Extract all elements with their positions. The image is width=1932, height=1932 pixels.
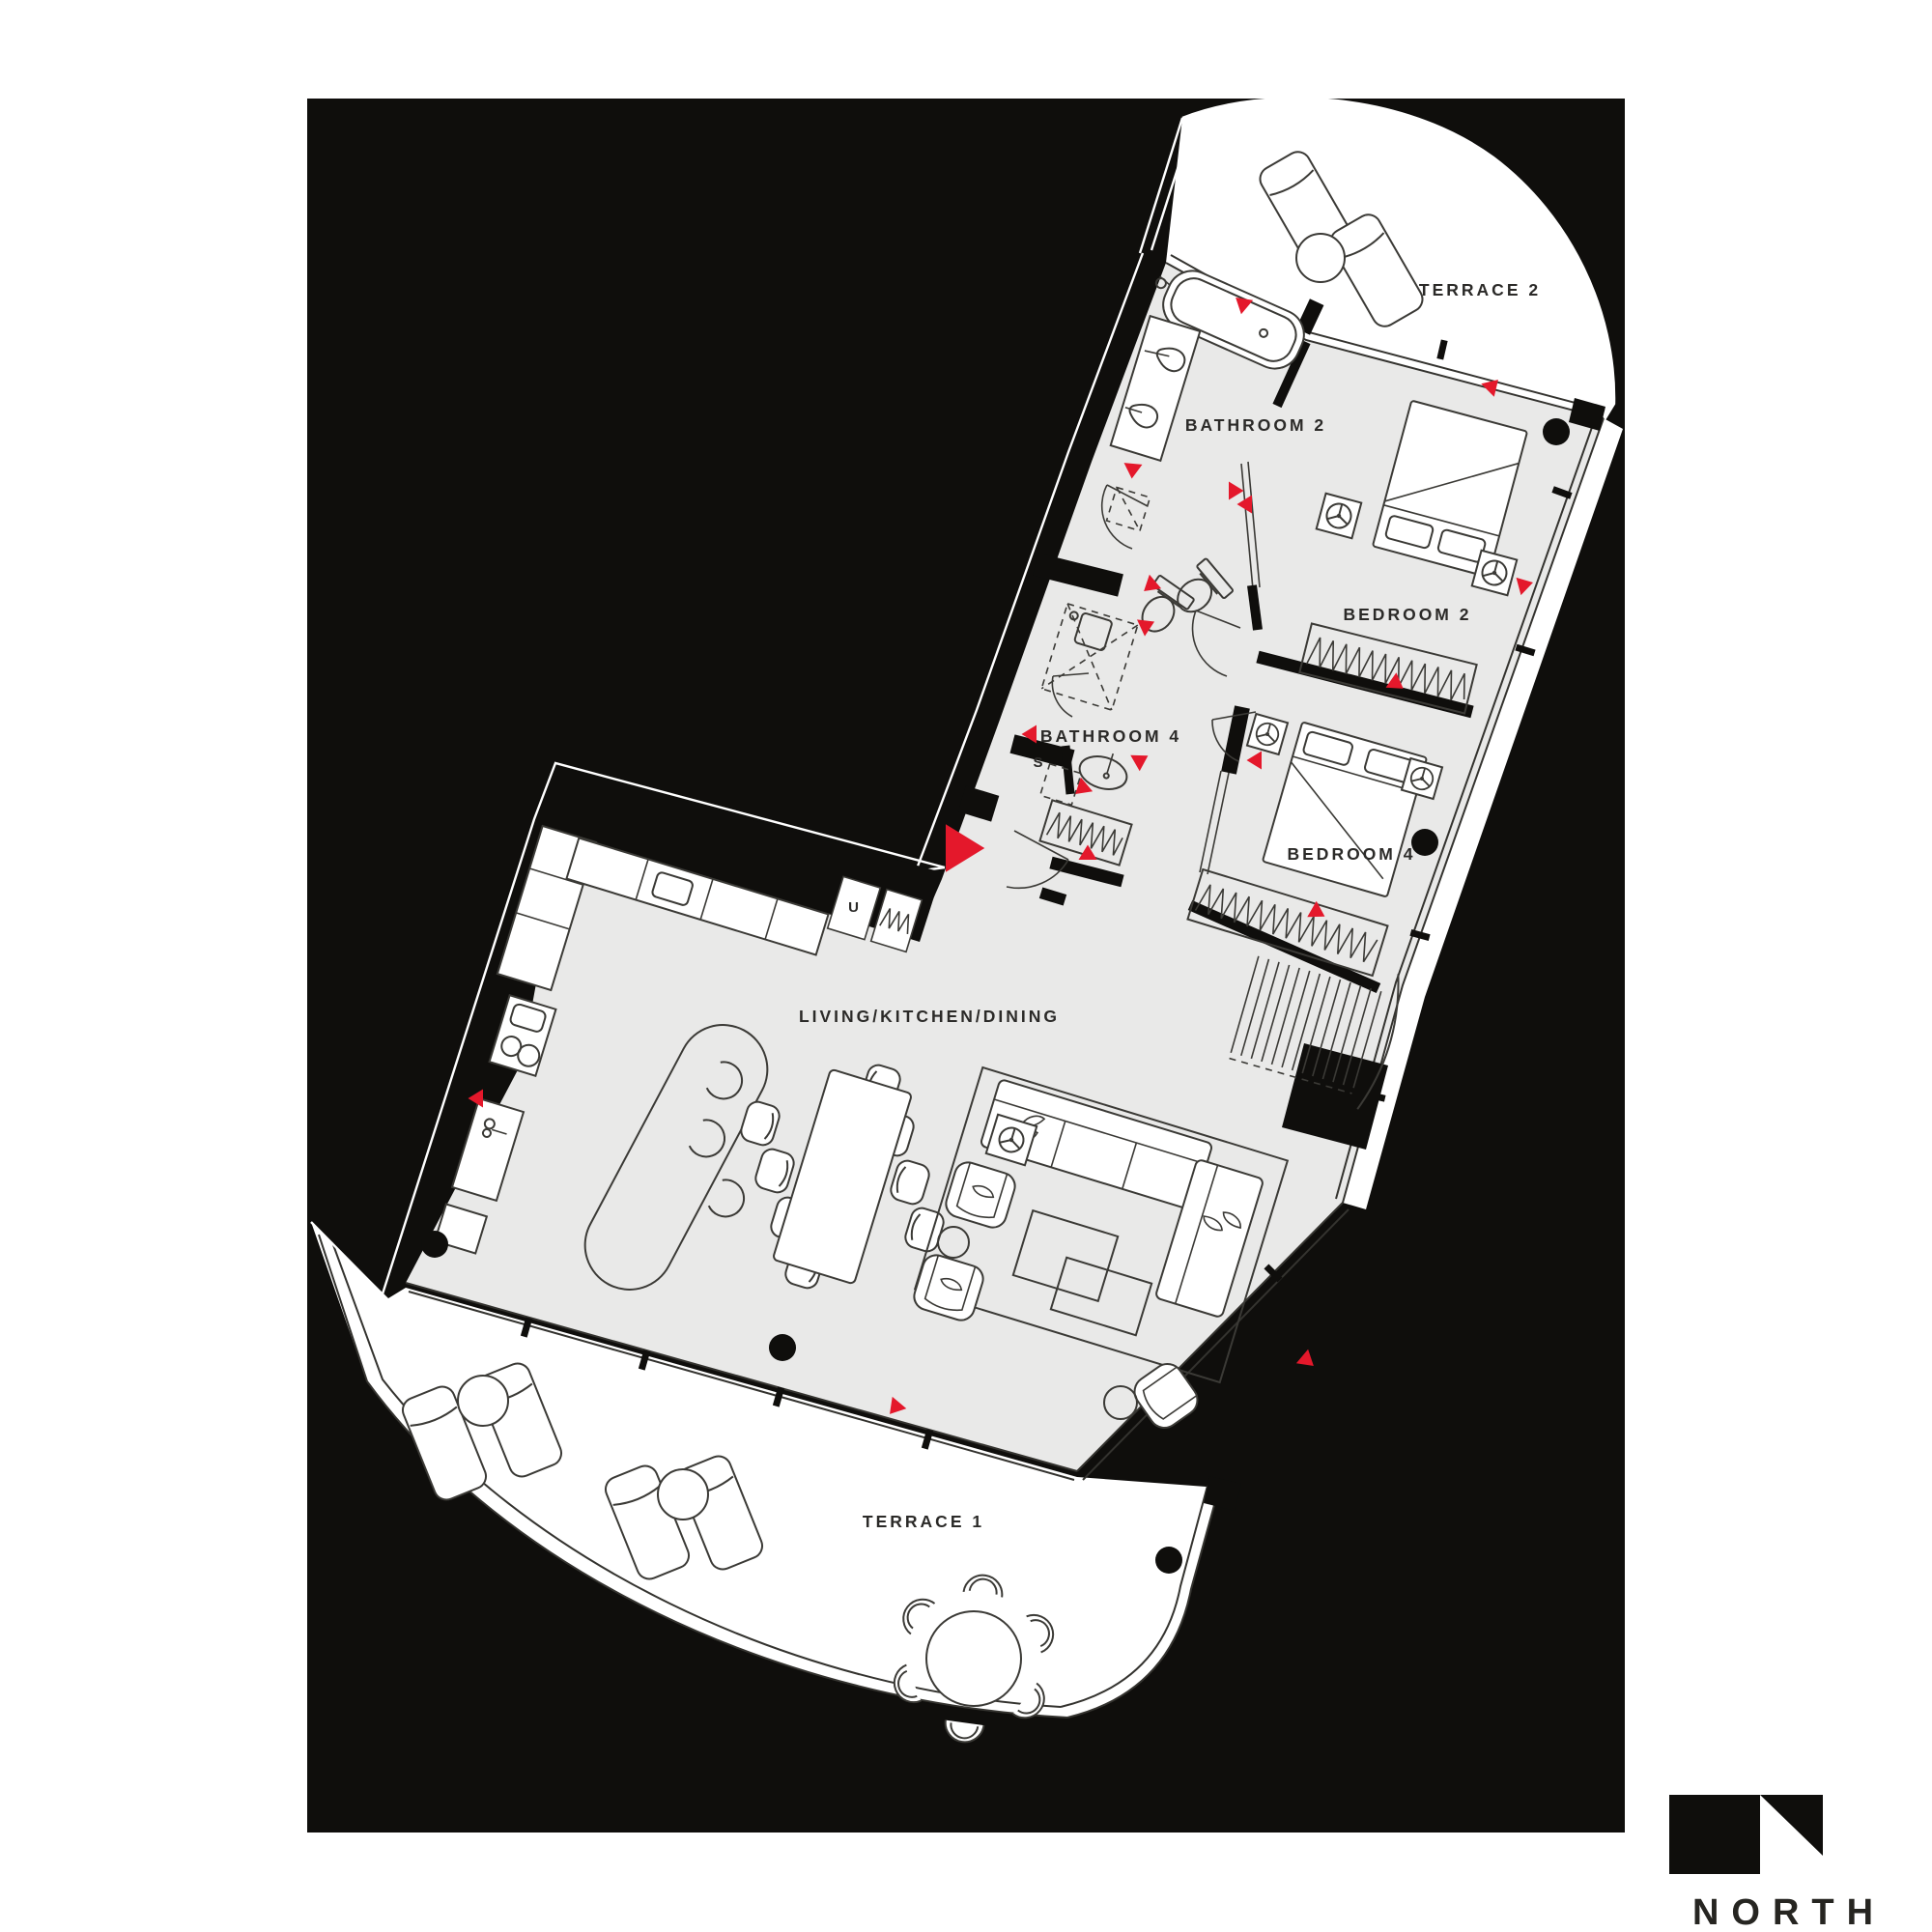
label-terrace-2: TERRACE 2 <box>1419 280 1541 299</box>
label-bathroom-4: BATHROOM 4 <box>1040 726 1181 746</box>
nightstand <box>1472 551 1518 596</box>
label-living: LIVING/KITCHEN/DINING <box>799 1007 1060 1026</box>
north-logo-text: NORTH <box>1692 1892 1886 1932</box>
label-storage: S <box>1033 754 1043 771</box>
label-bedroom-4: BEDROOM 4 <box>1288 844 1416 864</box>
label-utility: U <box>848 899 860 916</box>
north-logo: NORTH <box>1669 1795 1886 1932</box>
label-bedroom-2: BEDROOM 2 <box>1344 605 1472 624</box>
label-bathroom-2: BATHROOM 2 <box>1185 415 1326 435</box>
label-terrace-1: TERRACE 1 <box>863 1512 984 1531</box>
floorplan-canvas: TERRACE 2 BATHROOM 2 BEDROOM 2 BATHROOM … <box>0 0 1932 1932</box>
nightstand <box>1317 494 1362 539</box>
floorplan-page: TERRACE 2 BATHROOM 2 BEDROOM 2 BATHROOM … <box>0 0 1932 1932</box>
